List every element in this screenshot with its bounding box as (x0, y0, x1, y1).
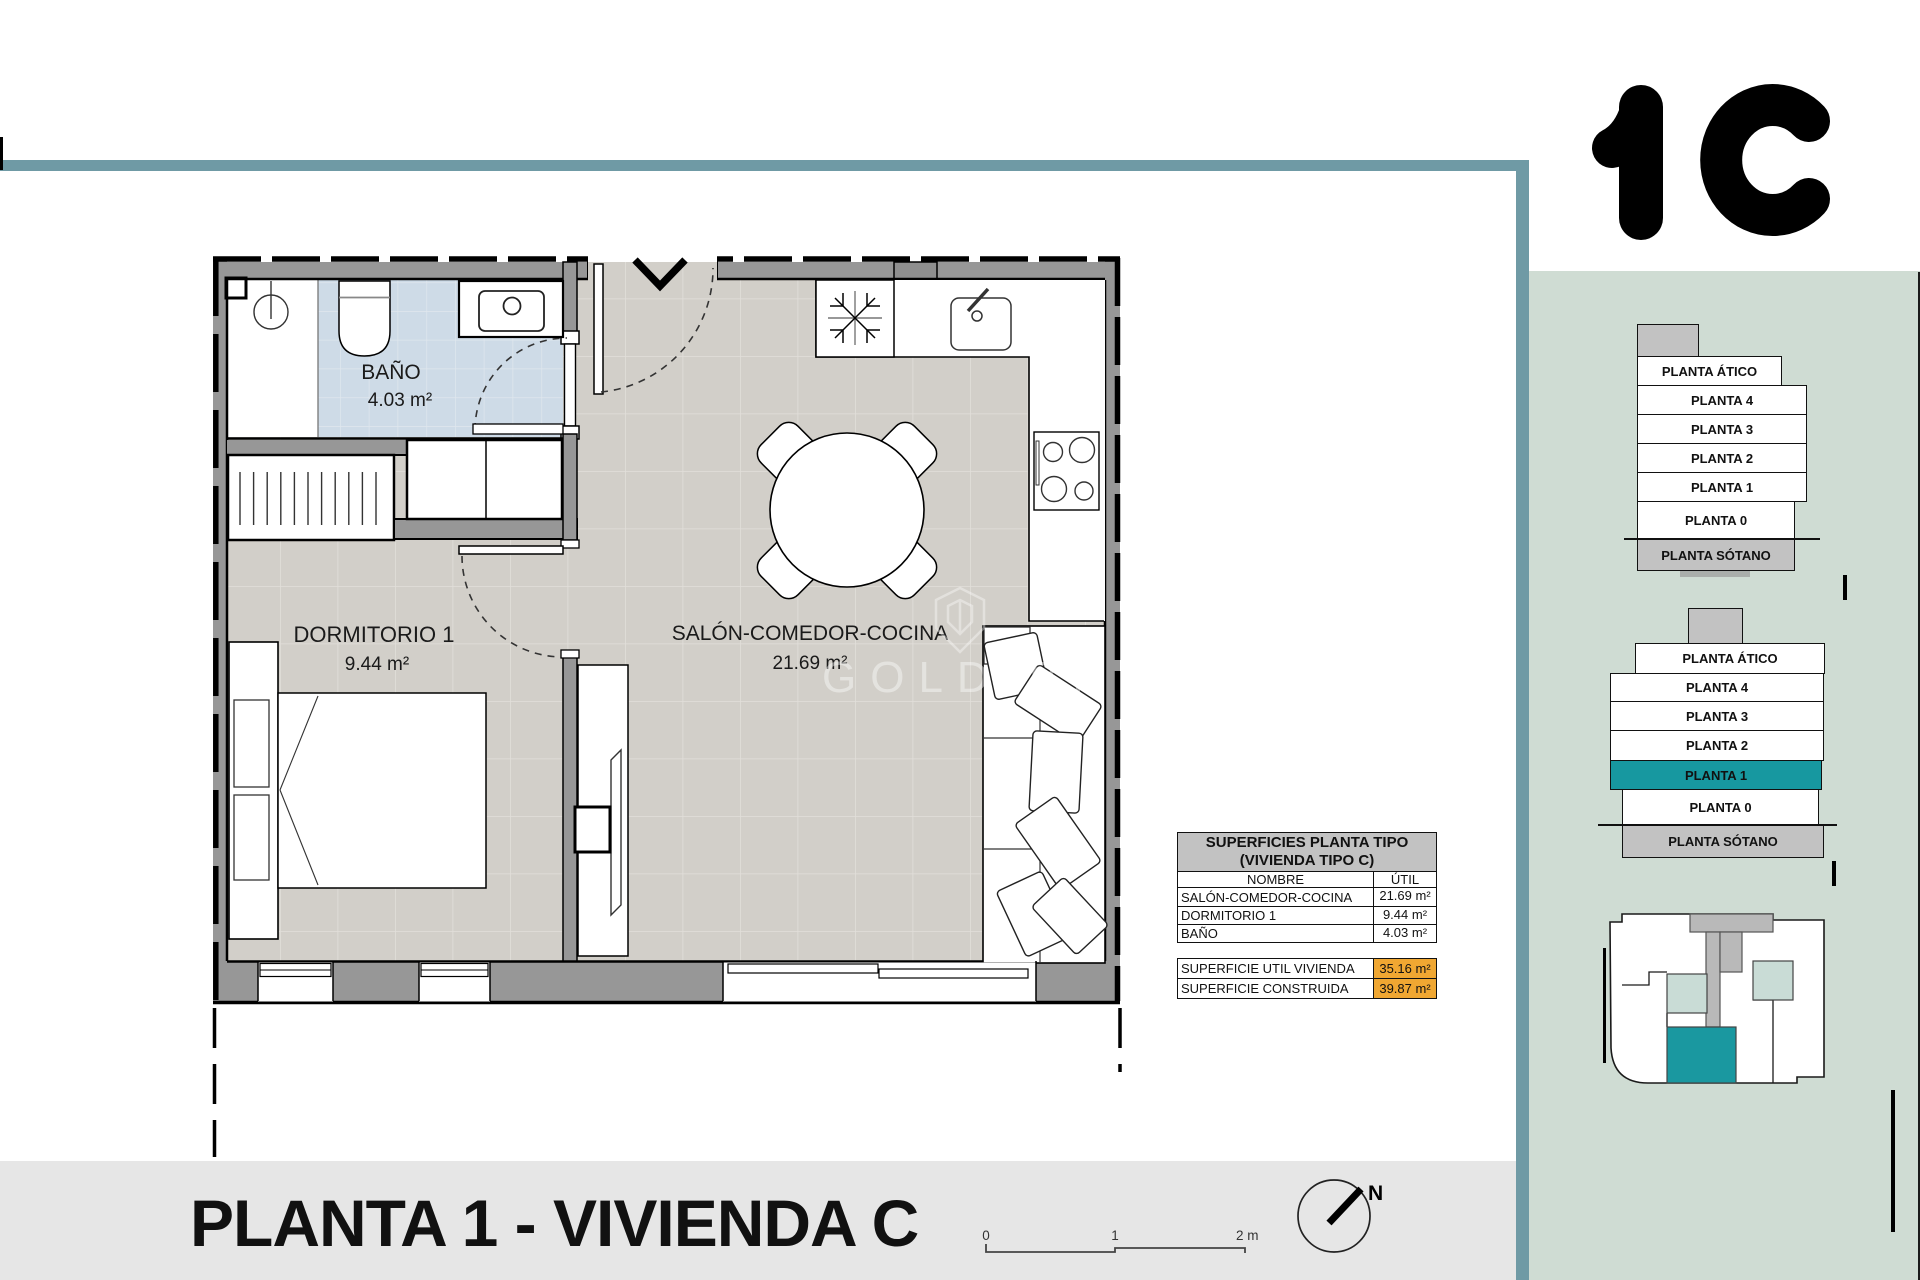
svg-text:4.03 m²: 4.03 m² (368, 390, 432, 411)
svg-text:9.44 m²: 9.44 m² (345, 654, 409, 675)
svg-text:BAÑO: BAÑO (361, 360, 421, 384)
svg-text:GOLD BR: GOLD BR (822, 653, 1118, 702)
svg-text:SALÓN-COMEDOR-COCINA: SALÓN-COMEDOR-COCINA (672, 622, 949, 645)
svg-text:1: 1 (1111, 1228, 1119, 1243)
svg-text:N: N (1368, 1182, 1383, 1205)
svg-text:0: 0 (982, 1228, 990, 1243)
svg-text:2 m: 2 m (1236, 1228, 1259, 1243)
svg-text:DORMITORIO 1: DORMITORIO 1 (294, 622, 455, 647)
